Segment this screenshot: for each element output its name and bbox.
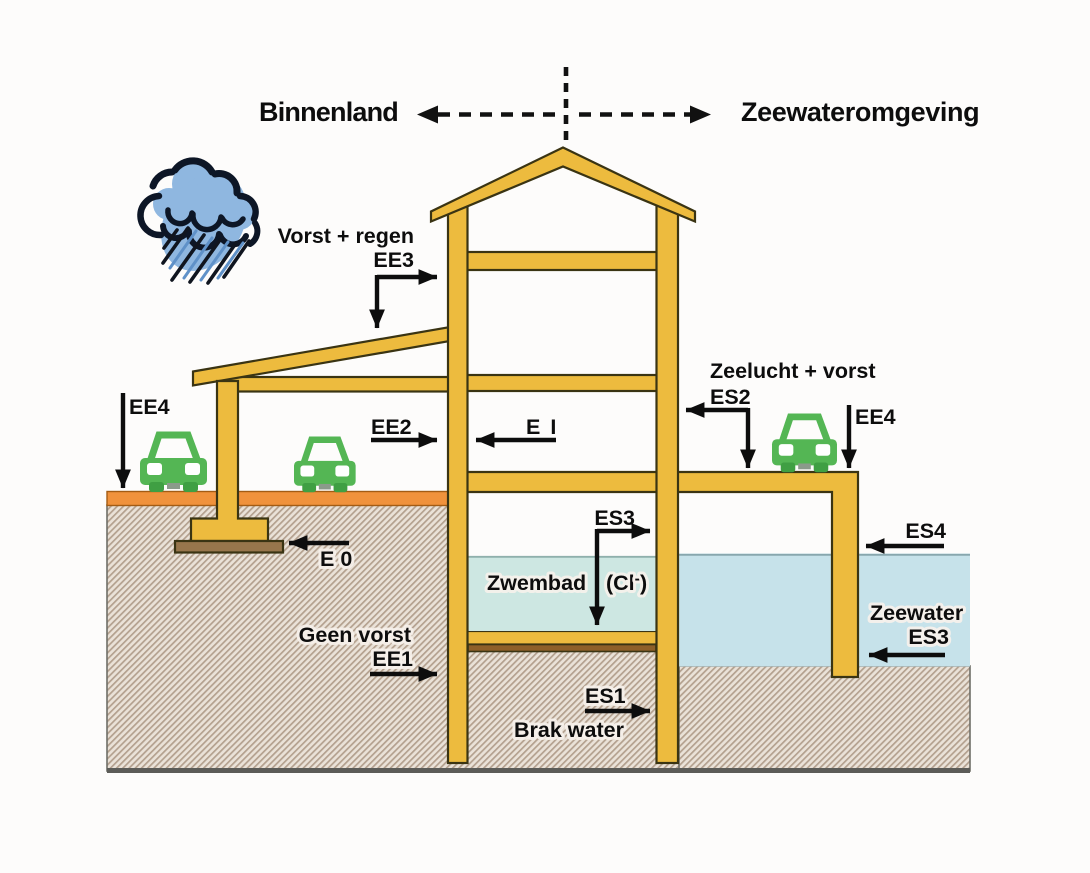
- svg-text:EE4: EE4: [855, 405, 896, 429]
- svg-text:ES3: ES3: [908, 625, 949, 649]
- svg-text:Vorst + regen: Vorst + regen: [278, 224, 414, 248]
- svg-text:(Cl-): (Cl-): [606, 571, 647, 596]
- svg-text:Zeewateromgeving: Zeewateromgeving: [741, 97, 979, 127]
- svg-text:E 0: E 0: [320, 547, 352, 571]
- svg-text:Zeewater: Zeewater: [870, 601, 964, 625]
- svg-text:ES4: ES4: [905, 519, 946, 543]
- svg-text:EE3: EE3: [373, 248, 414, 272]
- svg-text:Binnenland: Binnenland: [259, 97, 398, 127]
- svg-text:Brak water: Brak water: [514, 718, 625, 742]
- svg-text:E I: E I: [526, 415, 558, 439]
- svg-text:Zeelucht + vorst: Zeelucht + vorst: [710, 359, 875, 383]
- svg-text:Geen vorst: Geen vorst: [299, 623, 411, 647]
- svg-text:EE1: EE1: [372, 647, 413, 671]
- svg-text:ES1: ES1: [585, 684, 626, 708]
- svg-text:EE4: EE4: [129, 395, 170, 419]
- svg-text:ES2: ES2: [710, 385, 751, 409]
- svg-text:EE2: EE2: [371, 415, 412, 439]
- svg-text:ES3: ES3: [594, 506, 635, 530]
- svg-text:Zwembad: Zwembad: [487, 571, 586, 595]
